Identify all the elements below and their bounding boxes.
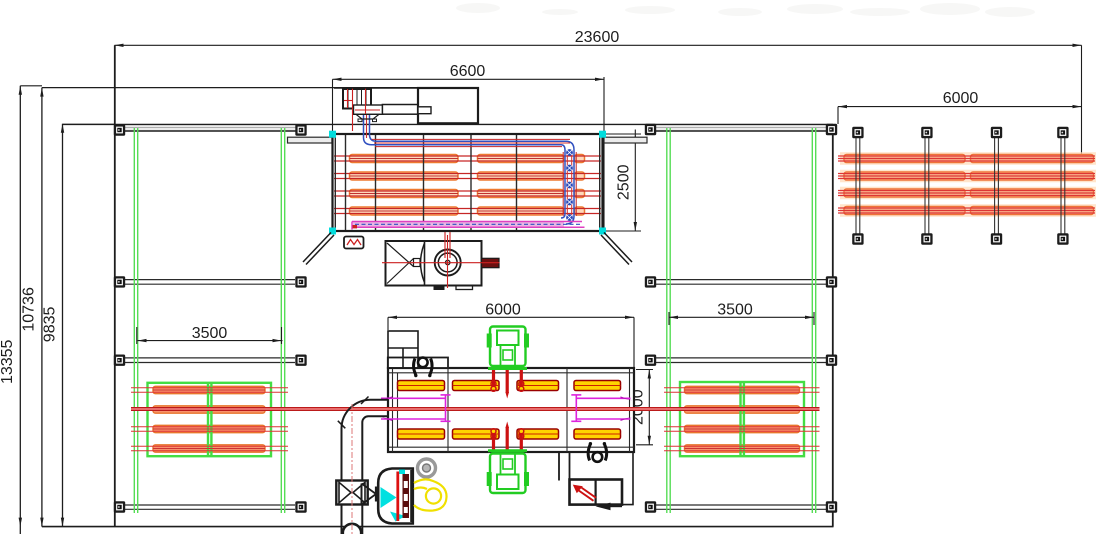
- svg-text:6000: 6000: [485, 302, 521, 319]
- svg-text:2500: 2500: [616, 164, 633, 200]
- svg-text:10736: 10736: [21, 287, 38, 332]
- svg-text:3500: 3500: [717, 302, 753, 319]
- svg-text:6000: 6000: [943, 90, 979, 107]
- svg-text:23600: 23600: [575, 29, 620, 46]
- svg-text:9835: 9835: [42, 307, 59, 343]
- svg-text:3500: 3500: [192, 325, 228, 342]
- svg-text:6600: 6600: [450, 63, 486, 80]
- svg-text:13355: 13355: [0, 339, 16, 384]
